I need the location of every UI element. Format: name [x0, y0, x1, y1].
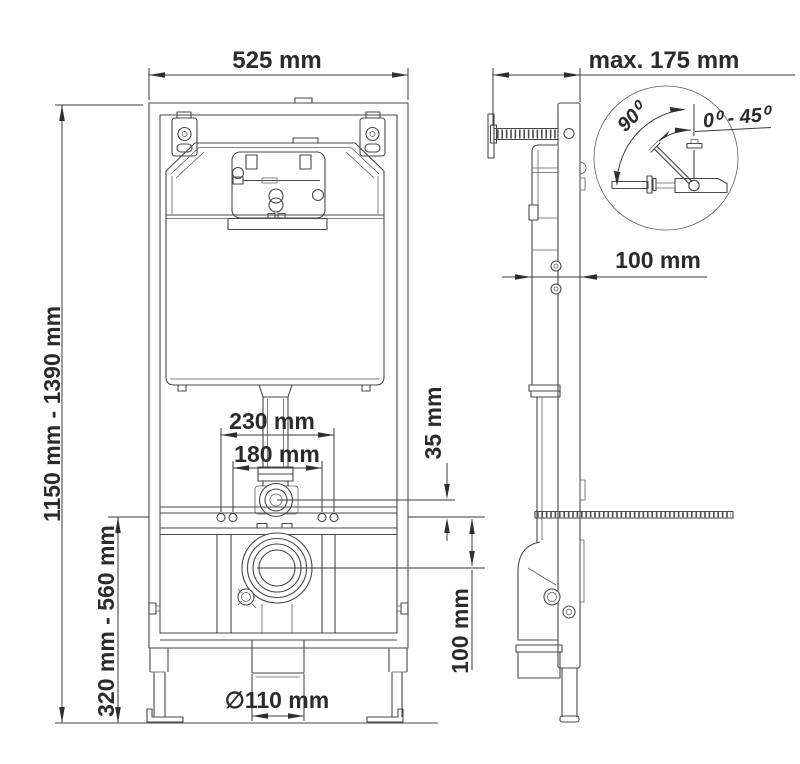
side-clip-left: [149, 603, 160, 614]
side-clip-right: [397, 603, 408, 614]
offset-35-label: 35 mm: [420, 387, 446, 460]
access-panel: [232, 152, 325, 218]
outlet-stub: [252, 640, 304, 677]
wall-bracket-left: [172, 112, 197, 156]
side-leg: [560, 668, 579, 722]
dimension-mount-height: 320 mm - 560 mm: [93, 517, 149, 723]
drain-outlet: [238, 533, 312, 608]
drain-offset-label: 100 mm: [447, 588, 473, 674]
spacing-230-label: 230 mm: [229, 408, 315, 434]
side-view: [488, 103, 733, 722]
spacing-180-label: 180 mm: [234, 441, 320, 467]
cistern: [166, 138, 384, 391]
frame-rail: [558, 103, 586, 668]
dimension-overall-height: 1150 mm - 1390 mm: [39, 105, 143, 723]
overall-height-label: 1150 mm - 1390 mm: [39, 306, 65, 522]
side-flush-pipe: [516, 385, 575, 678]
dimension-width-525: 525 mm: [149, 47, 408, 100]
technical-drawing-canvas: 90⁰ 0⁰ - 45⁰ 525 mm 1150 mm - 1390 mm 32…: [0, 0, 800, 764]
mount-height-label: 320 mm - 560 mm: [93, 525, 119, 717]
detail-circle: [594, 86, 738, 230]
outlet-diameter-label: ∅110 mm: [225, 687, 329, 713]
wc-mounting-studs: [535, 512, 733, 519]
width-label: 525 mm: [232, 47, 321, 74]
wall-bracket-right: [360, 112, 385, 156]
max-depth-label: max. 175 mm: [589, 47, 740, 74]
frame-depth-label: 100 mm: [615, 247, 701, 273]
bracket-angle-detail: 90⁰ 0⁰ - 45⁰: [594, 86, 774, 230]
detail-bracket: [612, 140, 727, 194]
drawing-svg: 90⁰ 0⁰ - 45⁰ 525 mm 1150 mm - 1390 mm 32…: [0, 0, 800, 764]
dimension-outlet-diameter: ∅110 mm: [225, 674, 329, 721]
cistern-profile: [529, 145, 561, 385]
